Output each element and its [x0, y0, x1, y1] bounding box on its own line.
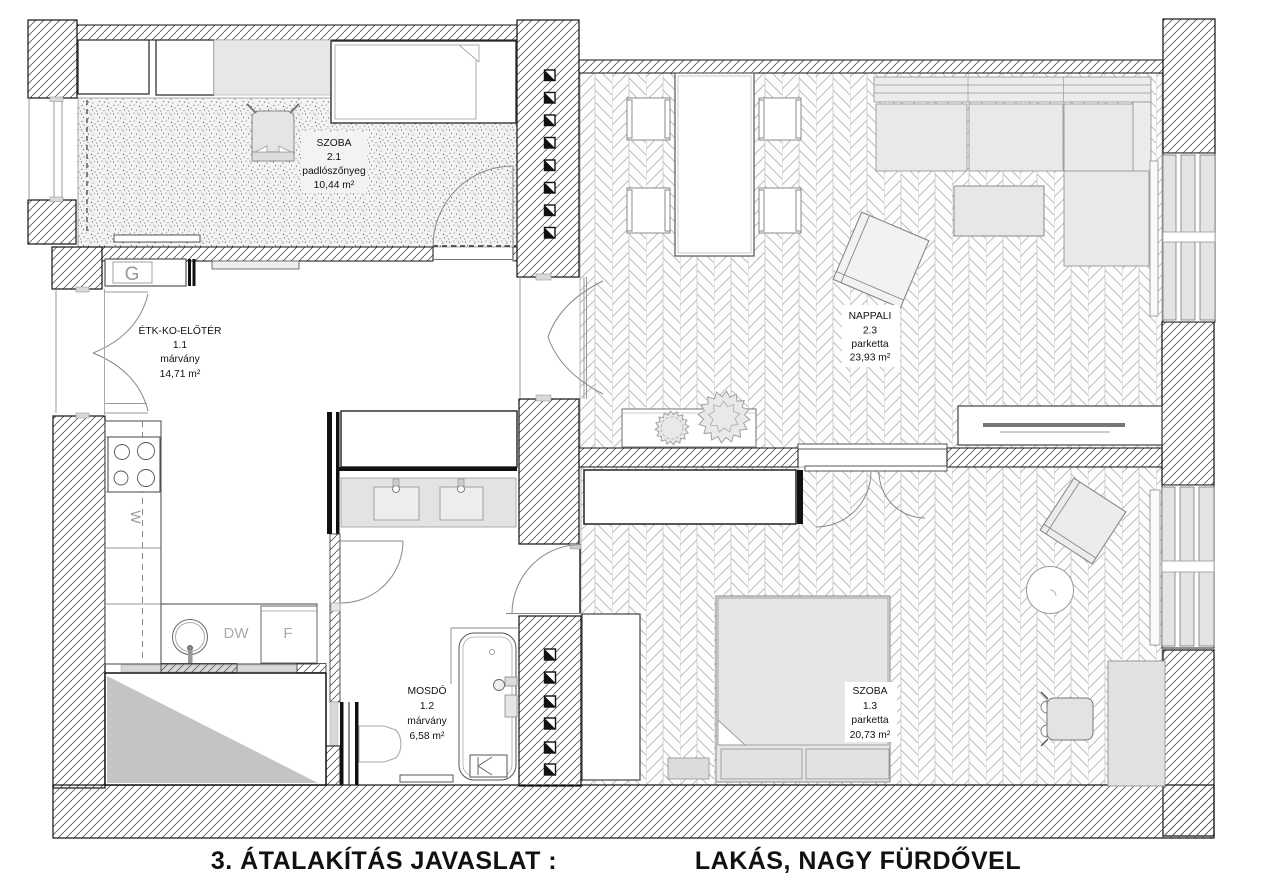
svg-text:LAKÁS, NAGY FÜRDŐVEL: LAKÁS, NAGY FÜRDŐVEL	[695, 846, 1021, 875]
svg-text:14,71 m²: 14,71 m²	[160, 369, 201, 380]
svg-text:6,58 m²: 6,58 m²	[410, 731, 445, 742]
svg-text:MOSDÓ: MOSDÓ	[408, 684, 447, 697]
svg-text:1.1: 1.1	[173, 340, 188, 351]
svg-text:márvány: márvány	[407, 716, 447, 727]
svg-text:W: W	[128, 510, 144, 524]
svg-text:2.1: 2.1	[327, 152, 342, 163]
svg-text:23,93 m²: 23,93 m²	[850, 353, 891, 364]
svg-text:10,44 m²: 10,44 m²	[314, 180, 355, 191]
svg-text:SZOBA: SZOBA	[317, 138, 352, 149]
svg-text:2.3: 2.3	[863, 326, 878, 337]
svg-text:ÉTK-KO-ELŐTÉR: ÉTK-KO-ELŐTÉR	[139, 323, 222, 337]
svg-text:F: F	[283, 625, 292, 642]
svg-text:1.2: 1.2	[420, 701, 435, 712]
svg-text:SZOBA: SZOBA	[853, 686, 888, 697]
svg-text:1.3: 1.3	[863, 701, 878, 712]
svg-text:padlószőnyeg: padlószőnyeg	[302, 166, 366, 177]
svg-text:parketta: parketta	[851, 339, 888, 350]
svg-text:parketta: parketta	[851, 715, 888, 726]
svg-text:márvány: márvány	[160, 354, 200, 365]
svg-text:G: G	[125, 264, 140, 285]
svg-text:3. ÁTALAKÍTÁS JAVASLAT :: 3. ÁTALAKÍTÁS JAVASLAT :	[211, 846, 557, 875]
svg-text:DW: DW	[224, 625, 250, 642]
svg-text:NAPPALI: NAPPALI	[849, 311, 892, 322]
svg-text:20,73 m²: 20,73 m²	[850, 730, 891, 741]
